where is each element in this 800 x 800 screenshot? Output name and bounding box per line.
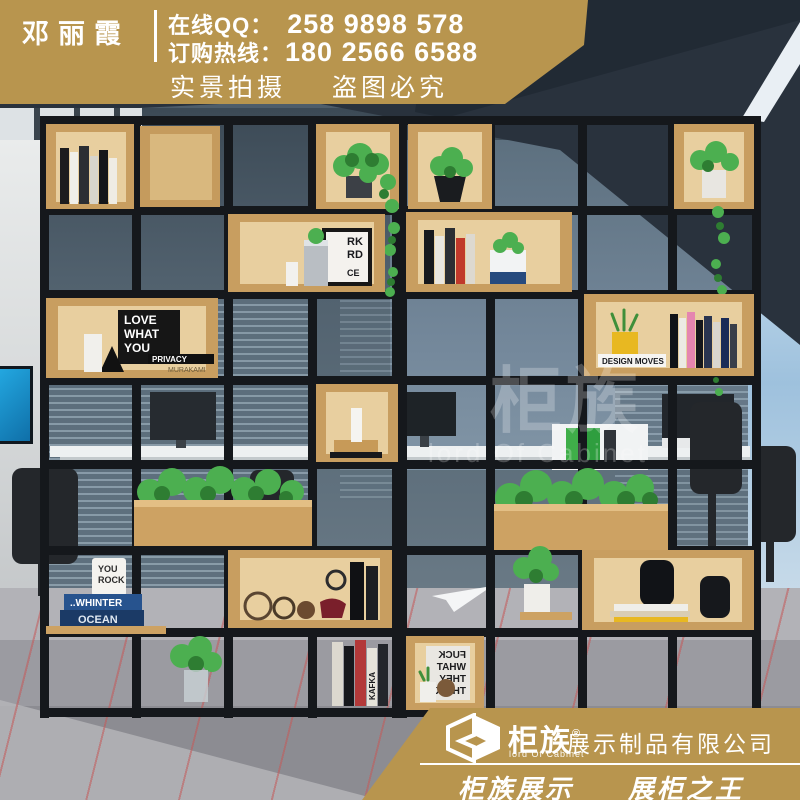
banner-rule (420, 763, 800, 765)
hotline-number: 180 2566 6588 (285, 37, 478, 68)
tagline-right: 盗图必究 (332, 68, 448, 104)
wood-box-plant-r1 (408, 124, 492, 209)
books-kafka: KAFKA (332, 640, 388, 706)
seller-name: 邓丽霞 (22, 12, 130, 51)
hotline-row: 订购热线： 180 2566 6588 (168, 36, 478, 68)
svg-text:MURAKAMI: MURAKAMI (168, 367, 206, 374)
watermark-sub: lord Of Cabinet (428, 440, 748, 466)
wood-box-decor (228, 550, 392, 628)
svg-text:CE: CE (347, 268, 360, 278)
svg-text:PRIVACY: PRIVACY (152, 355, 188, 364)
svg-text:OCEAN: OCEAN (78, 614, 118, 626)
svg-text:ROCK: ROCK (98, 575, 125, 585)
wood-box-books-r3 (406, 212, 572, 292)
plant-white-pot (513, 546, 572, 620)
slogan-row: 柜族展示 展柜之王 (458, 769, 744, 800)
svg-text:FUCK: FUCK (437, 650, 466, 661)
svg-text:YOU: YOU (98, 564, 118, 574)
wood-box-mirror-poster: FUCK WHAT THEY THINK (406, 636, 484, 710)
wood-box-vases (582, 550, 754, 630)
svg-text:WHAT: WHAT (124, 327, 160, 341)
watermark-brand: 柜族 (490, 366, 748, 438)
banner-divider (154, 10, 157, 62)
company-name: 展示制品有限公司 (567, 725, 775, 759)
slogan-right: 展柜之王 (628, 769, 744, 800)
svg-text:..WHINTER: ..WHINTER (70, 598, 123, 609)
slogan-left: 柜族展示 (458, 769, 574, 800)
svg-text:WHAT: WHAT (437, 662, 466, 673)
svg-text:YOU: YOU (124, 341, 150, 355)
paper-airplane (432, 586, 492, 612)
tagline-row: 实景拍摄 盗图必究 (170, 68, 448, 104)
wood-box-frame: RK RD CE (228, 214, 385, 292)
wood-box-candle (316, 384, 398, 462)
wood-panel (140, 126, 220, 207)
svg-text:RD: RD (347, 249, 363, 261)
books-stack-blue: YOU ROCK ..WHINTER OCEAN (46, 558, 166, 634)
plant-glass-vase (170, 636, 222, 702)
brand-logo-icon (446, 713, 502, 763)
wood-box-books (46, 124, 134, 209)
wood-box-poster: LOVE WHAT YOU PRIVACY MURAKAMI (46, 298, 218, 378)
svg-text:RK: RK (347, 236, 363, 248)
svg-text:LOVE: LOVE (124, 313, 157, 327)
watermark: 柜族 lord Of Cabinet (428, 366, 748, 466)
product-image: RK RD CE LOVE WHAT YOU PRIVACY MURAKAMI (0, 0, 800, 800)
svg-text:KAFKA: KAFKA (368, 672, 377, 700)
planter-box-right (494, 468, 668, 550)
hotline-label: 订购热线： (168, 36, 283, 68)
tagline-left: 实景拍摄 (170, 68, 286, 104)
